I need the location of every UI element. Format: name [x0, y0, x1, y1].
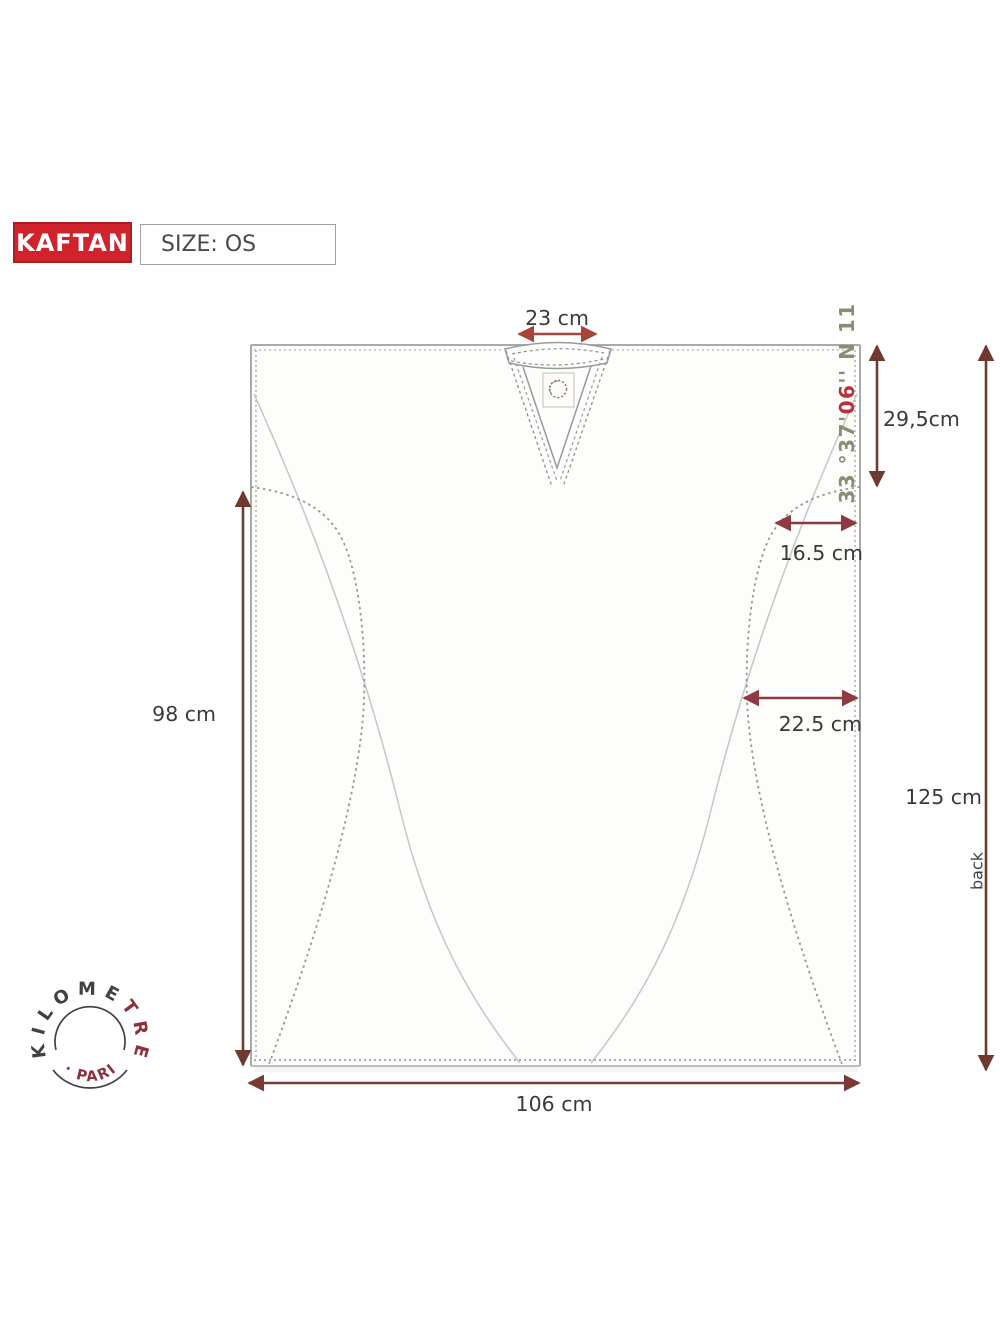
armhole-top-label: 16.5 cm	[780, 541, 863, 565]
coordinates-prefix: 33 °37'	[835, 414, 859, 503]
side-seam-label: 98 cm	[152, 702, 216, 726]
armhole-bottom-label: 22.5 cm	[779, 712, 862, 736]
coordinates-accent: 06	[835, 384, 859, 415]
stamp-word-bottom: · PARIS	[0, 0, 120, 1085]
coordinates-print-label: 33 °37'06'' N 11	[835, 302, 859, 503]
stamp-word-top-red: TRE	[117, 996, 153, 1067]
hem-width-label: 106 cm	[516, 1092, 593, 1116]
stamp-word-top-dark: KILOME	[27, 979, 129, 1060]
garment-outline	[251, 345, 860, 1072]
back-side-label: back	[968, 852, 987, 890]
kaftan-technical-drawing: KILOMETRE · PARIS	[0, 0, 1000, 1333]
neck-width-label: 23 cm	[525, 306, 589, 330]
svg-text:· PARIS: · PARIS	[0, 0, 120, 1085]
center-back-label: 125 cm	[905, 785, 982, 809]
neck-drop-label: 29,5cm	[883, 407, 960, 431]
coordinates-suffix: '' N 11	[835, 302, 859, 383]
svg-text:KILOMETRE: KILOMETRE	[27, 979, 153, 1067]
brand-stamp-logo: KILOMETRE · PARIS	[0, 0, 153, 1088]
neck-brand-label	[543, 373, 574, 407]
size-chart-canvas: KAFTAN SIZE: OS	[0, 0, 1000, 1333]
